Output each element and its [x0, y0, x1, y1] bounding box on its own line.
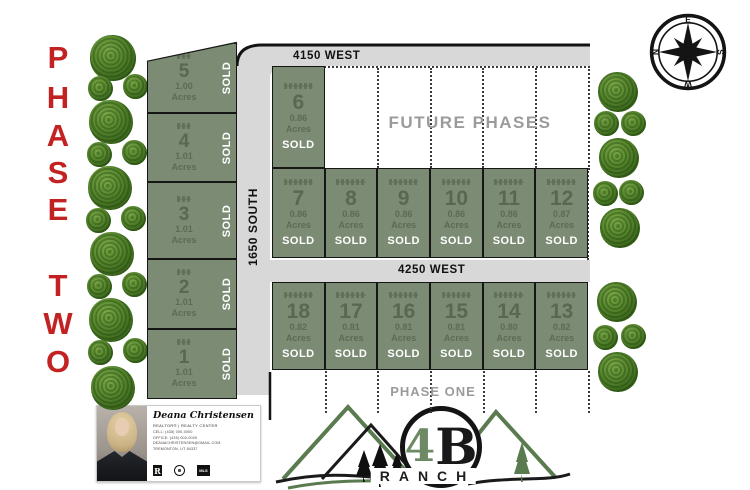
lot-cell: 41.01AcresSOLD — [147, 113, 237, 182]
tree — [593, 325, 618, 350]
lot-cell: 140.80AcresSOLD — [483, 282, 536, 370]
tree — [619, 180, 644, 205]
tree — [86, 208, 111, 233]
lot-acreage: 0.86 — [342, 209, 360, 220]
lot-acreage: 0.86 — [448, 209, 466, 220]
phase-one-label: PHASE ONE — [373, 384, 493, 399]
tree — [598, 352, 638, 392]
road-label-4250-west: 4250 WEST — [398, 264, 465, 276]
lot-price-faint — [442, 179, 471, 185]
lot-cell: 160.81AcresSOLD — [377, 282, 430, 370]
tree — [594, 111, 619, 136]
lot-number: 9 — [398, 188, 410, 209]
lot-price-faint — [494, 292, 523, 298]
lot-acreage: 1.01 — [175, 224, 193, 235]
tree — [598, 72, 638, 112]
lot-acres-word: Acres — [171, 235, 196, 246]
phase-two-letter: S — [38, 157, 78, 188]
lot-acreage: 0.82 — [553, 322, 571, 333]
tree — [593, 181, 618, 206]
lot-price-faint — [547, 179, 576, 185]
sold-badge: SOLD — [221, 131, 233, 164]
sold-badge: SOLD — [221, 348, 233, 381]
sold-badge: SOLD — [387, 348, 420, 360]
lot-number: 17 — [339, 301, 362, 322]
lot-number: 7 — [293, 188, 305, 209]
sold-badge: SOLD — [282, 235, 315, 247]
lot-cell: 150.81AcresSOLD — [430, 282, 483, 370]
sold-badge: SOLD — [545, 235, 578, 247]
lot-acres-word: Acres — [496, 220, 521, 231]
lot-price-faint — [284, 292, 313, 298]
lot-acreage: 1.01 — [175, 367, 193, 378]
lot-price-faint — [177, 269, 192, 275]
phase-two-letter: O — [38, 346, 78, 377]
lot-price-faint — [547, 292, 576, 298]
sold-badge: SOLD — [440, 348, 473, 360]
lot-acreage: 0.81 — [395, 322, 413, 333]
lot-price-faint — [442, 292, 471, 298]
lot-acres-word: Acres — [338, 220, 363, 231]
lot-acres-word: Acres — [171, 162, 196, 173]
lot-acres-word: Acres — [171, 308, 196, 319]
sold-badge: SOLD — [221, 278, 233, 311]
lot-cell: 31.01AcresSOLD — [147, 182, 237, 259]
lot-number: 4 — [179, 132, 190, 151]
lot-price-faint — [177, 196, 192, 202]
lot-acreage: 0.86 — [290, 113, 308, 124]
tree — [90, 232, 134, 276]
lot-number: 5 — [179, 62, 190, 81]
lot-acres-word: Acres — [391, 333, 416, 344]
lot-cell: 60.86AcresSOLD — [272, 66, 325, 168]
lot-price-faint — [494, 179, 523, 185]
tree — [121, 206, 146, 231]
sold-badge: SOLD — [545, 348, 578, 360]
lot-acres-word: Acres — [171, 92, 196, 103]
phase-one-dotted-line — [325, 371, 327, 413]
tree — [123, 74, 148, 99]
lot-cell: 100.86AcresSOLD — [430, 168, 483, 258]
lot-number: 11 — [498, 188, 520, 209]
sold-badge: SOLD — [387, 235, 420, 247]
lot-acreage: 0.86 — [500, 209, 518, 220]
lot-acreage: 1.01 — [175, 297, 193, 308]
lot-acreage: 0.81 — [448, 322, 466, 333]
lot-number: 2 — [179, 278, 190, 297]
lot-number: 12 — [550, 188, 573, 209]
phase-two-letter: A — [38, 120, 78, 151]
sold-badge: SOLD — [221, 204, 233, 237]
lot-number: 8 — [345, 188, 357, 209]
lot-price-faint — [389, 292, 418, 298]
sold-badge: SOLD — [335, 348, 368, 360]
tree — [599, 138, 639, 178]
tree — [87, 142, 112, 167]
phase-two-letter: H — [38, 82, 78, 113]
lot-number: 1 — [179, 348, 190, 367]
lot-price-faint — [284, 179, 313, 185]
phase-one-dotted-line — [535, 371, 537, 413]
lot-acres-word: Acres — [549, 220, 574, 231]
tree — [122, 272, 147, 297]
lot-price-faint — [284, 83, 313, 89]
tree — [89, 298, 133, 342]
lot-acres-word: Acres — [338, 333, 363, 344]
sold-badge: SOLD — [282, 348, 315, 360]
sold-badge: SOLD — [282, 139, 315, 151]
lot-acres-word: Acres — [171, 378, 196, 389]
lot-cell: 11.01AcresSOLD — [147, 329, 237, 399]
lot-cell: 80.86AcresSOLD — [325, 168, 378, 258]
tree — [123, 338, 148, 363]
lot-cell: 180.82AcresSOLD — [272, 282, 325, 370]
lot-acreage: 0.86 — [290, 209, 308, 220]
plat-map-flyer: FUTURE PHASES PHASE ONE 51.00AcresSOLD41… — [0, 0, 750, 490]
sold-badge: SOLD — [493, 348, 526, 360]
lot-acreage: 0.80 — [500, 322, 518, 333]
tree — [89, 100, 133, 144]
lot-cell: 120.87AcresSOLD — [535, 168, 588, 258]
lot-acres-word: Acres — [286, 220, 311, 231]
lot-acreage: 1.01 — [175, 151, 193, 162]
lot-price-faint — [177, 123, 192, 129]
tree — [88, 166, 132, 210]
lot-acres-word: Acres — [444, 333, 469, 344]
lot-cell: 70.86AcresSOLD — [272, 168, 325, 258]
road-label-1650-south: 1650 SOUTH — [246, 188, 260, 266]
lot-number: 6 — [293, 92, 305, 113]
lot-price-faint — [336, 292, 365, 298]
lot-acreage: 0.82 — [290, 322, 308, 333]
sold-badge: SOLD — [221, 62, 233, 95]
lot-price-faint — [389, 179, 418, 185]
lot-acres-word: Acres — [549, 333, 574, 344]
lot-price-faint — [336, 179, 365, 185]
lot-number: 15 — [445, 301, 468, 322]
future-phases-label: FUTURE PHASES — [352, 113, 588, 133]
tree — [122, 140, 147, 165]
tree — [88, 340, 113, 365]
lot-acres-word: Acres — [444, 220, 469, 231]
tree — [597, 282, 637, 322]
lot-price-faint — [177, 339, 192, 345]
sold-badge: SOLD — [335, 235, 368, 247]
lot-acreage: 1.00 — [175, 81, 193, 92]
lot-number: 10 — [445, 188, 468, 209]
lot-number: 14 — [497, 301, 520, 322]
phase-two-letter: T — [38, 270, 78, 301]
lot-acres-word: Acres — [286, 333, 311, 344]
lot-cell: 170.81AcresSOLD — [325, 282, 378, 370]
lot-acres-word: Acres — [286, 124, 311, 135]
lot-number: 18 — [287, 301, 310, 322]
tree — [621, 324, 646, 349]
lot-acreage: 0.81 — [342, 322, 360, 333]
lot-cell: 110.86AcresSOLD — [483, 168, 536, 258]
lot-acres-word: Acres — [496, 333, 521, 344]
lot-acres-word: Acres — [391, 220, 416, 231]
phase-two-letter: E — [38, 194, 78, 225]
lot-acreage: 0.87 — [553, 209, 571, 220]
sold-badge: SOLD — [440, 235, 473, 247]
sold-badge: SOLD — [493, 235, 526, 247]
tree — [91, 366, 135, 410]
lot-acreage: 0.86 — [395, 209, 413, 220]
lot-cell: 130.82AcresSOLD — [535, 282, 588, 370]
phase-one-dotted-line — [588, 371, 590, 413]
tree — [88, 76, 113, 101]
tree — [621, 111, 646, 136]
tree — [87, 274, 112, 299]
lot-cell: 90.86AcresSOLD — [377, 168, 430, 258]
lot-number: 16 — [392, 301, 415, 322]
lot-number: 13 — [550, 301, 573, 322]
tree — [600, 208, 640, 248]
phase-two-letter: W — [38, 308, 78, 339]
phase-two-letter: P — [38, 42, 78, 73]
lot-number: 3 — [179, 205, 190, 224]
road-label-4150-west: 4150 WEST — [293, 50, 360, 62]
lot-cell: 21.01AcresSOLD — [147, 259, 237, 329]
